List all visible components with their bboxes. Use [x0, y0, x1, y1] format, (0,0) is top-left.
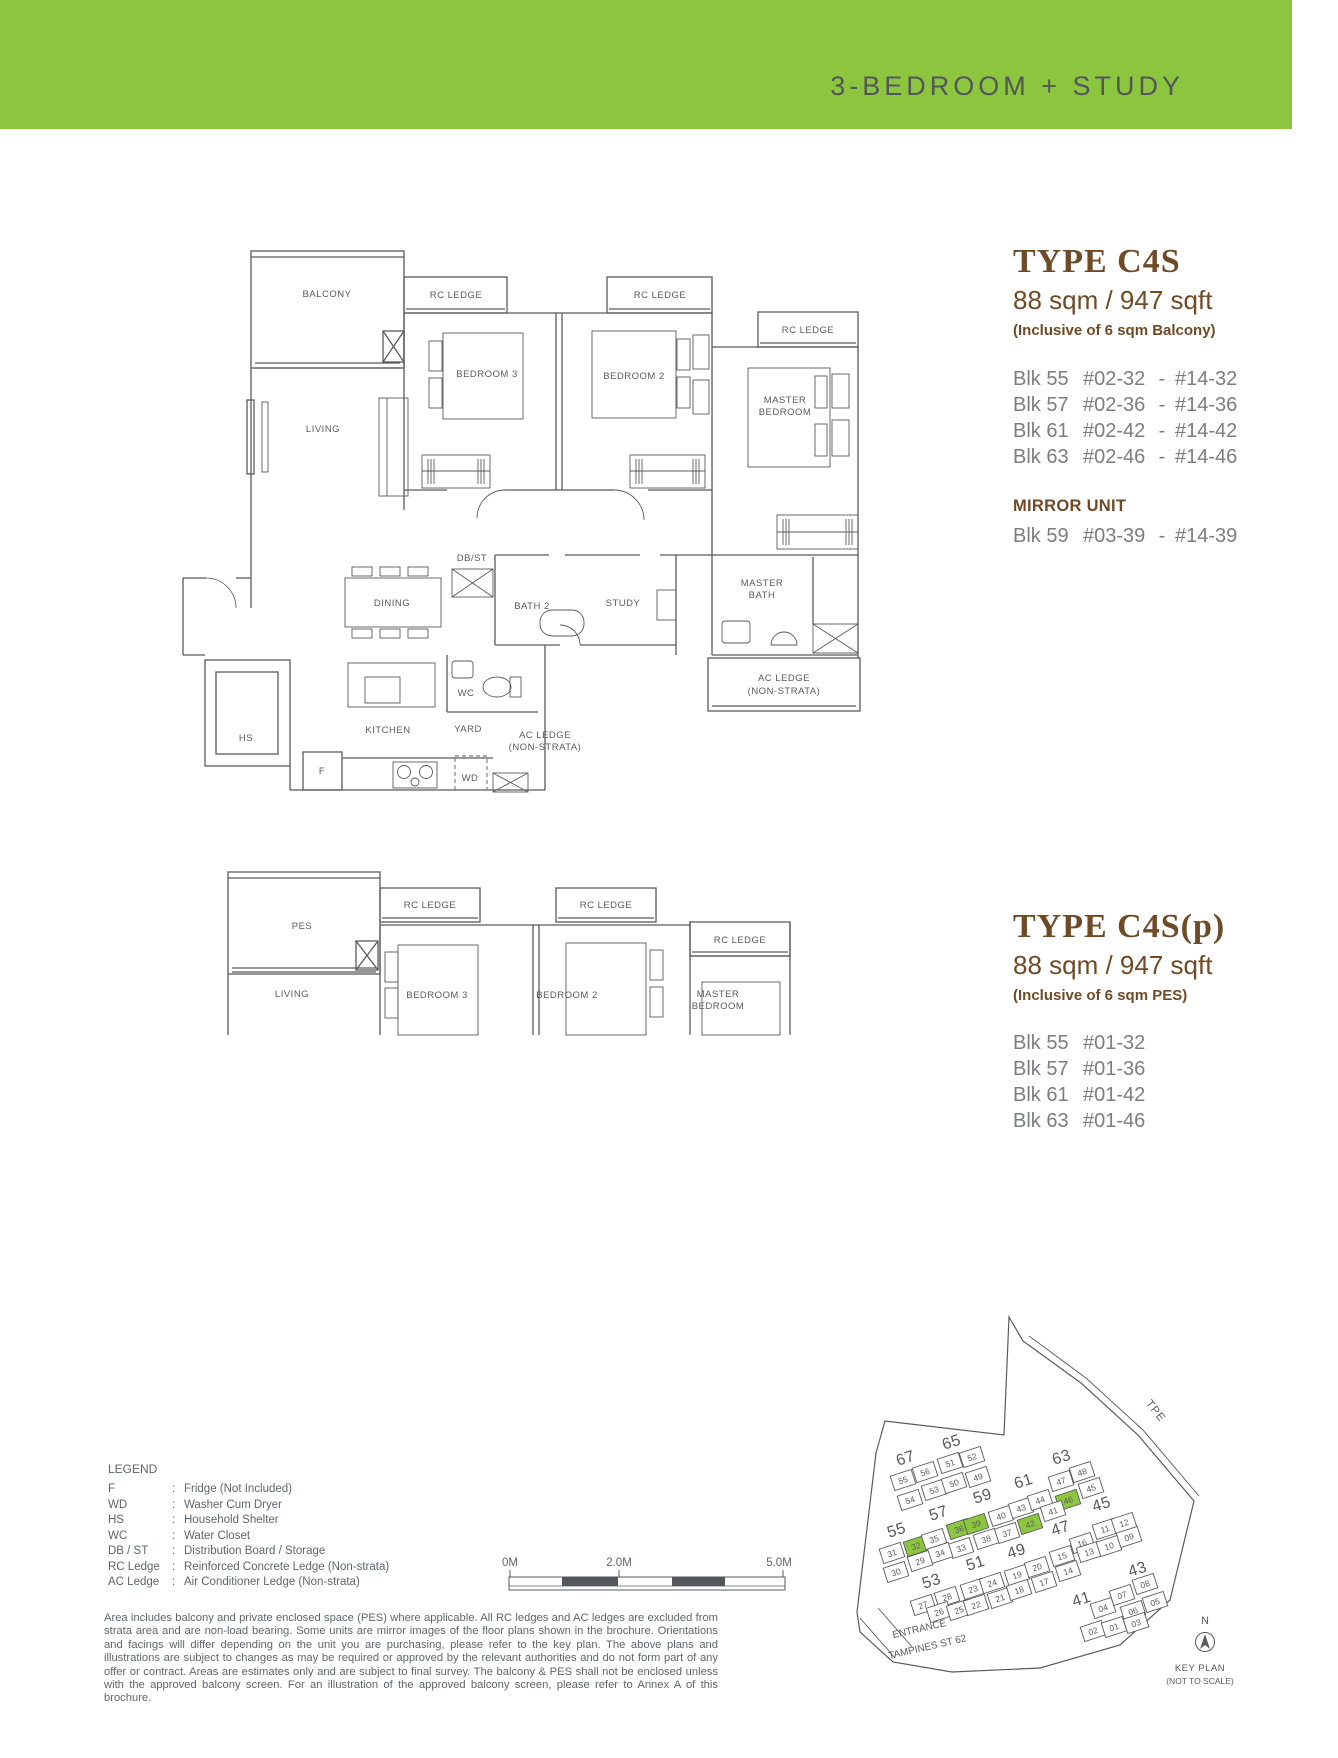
room-label: BEDROOM 3 — [406, 990, 468, 1001]
room-label: PES — [292, 921, 313, 932]
room-label: LIVING — [306, 424, 340, 435]
room-label: RC LEDGE — [404, 900, 457, 911]
legend-desc: Fridge (Not Included) — [184, 1482, 292, 1498]
room-label: RC LEDGE — [782, 325, 835, 336]
room-label: (NON-STRATA) — [509, 742, 582, 753]
key-plan-block-number: 61 — [1012, 1471, 1035, 1493]
unit-row: Blk 57#02-36-#14-36 — [1013, 392, 1237, 418]
scale-label-2m: 2.0M — [606, 1557, 632, 1569]
room-label: YARD — [454, 724, 482, 735]
legend-desc: Distribution Board / Storage — [184, 1544, 325, 1560]
unit-row: Blk 55#02-32-#14-32 — [1013, 366, 1237, 392]
unit-block: Blk 55 — [1013, 366, 1083, 392]
unit-to: #14-39 — [1175, 525, 1237, 547]
legend-item: RC Ledge:Reinforced Concrete Ledge (Non-… — [108, 1560, 389, 1576]
key-plan-caption: KEY PLAN — [1175, 1663, 1225, 1674]
legend-items: F:Fridge (Not Included)WD:Washer Cum Dry… — [108, 1482, 389, 1591]
legend-abbr: RC Ledge — [108, 1560, 172, 1576]
key-plan-unit: 54 — [897, 1489, 923, 1510]
room-label: RC LEDGE — [580, 900, 633, 911]
room-label: BEDROOM — [692, 1001, 745, 1012]
key-plan-block-number: 53 — [920, 1571, 943, 1593]
room-label: RC LEDGE — [714, 935, 767, 946]
legend-item: DB / ST:Distribution Board / Storage — [108, 1544, 389, 1560]
unit-from: #02-36 — [1083, 392, 1149, 418]
legend-item: WD:Washer Cum Dryer — [108, 1498, 389, 1514]
unit-row: Blk 61#02-42-#14-42 — [1013, 418, 1237, 444]
key-plan-block-number: 67 — [894, 1448, 917, 1470]
key-plan-unit: 47 — [1048, 1470, 1074, 1491]
legend-colon: : — [172, 1560, 184, 1576]
legend-abbr: WD — [108, 1498, 172, 1514]
room-label: RC LEDGE — [634, 290, 687, 301]
room-label: MASTER — [741, 578, 784, 589]
key-plan-unit: 31 — [879, 1542, 905, 1563]
unit-row: Blk 61#01-42 — [1013, 1082, 1149, 1108]
type-c4s-title: TYPE C4S — [1013, 243, 1181, 281]
room-label: STUDY — [606, 598, 641, 609]
room-label: BEDROOM 2 — [536, 990, 598, 1001]
floorplan-c4s: BALCONYRC LEDGERC LEDGERC LEDGEBEDROOM 3… — [150, 215, 890, 815]
legend: LEGEND F:Fridge (Not Included)WD:Washer … — [108, 1462, 389, 1591]
legend-abbr: DB / ST — [108, 1544, 172, 1560]
key-plan-block-number: 47 — [1049, 1518, 1072, 1540]
entrance-label: ENTRANCE — [891, 1618, 947, 1641]
legend-abbr: F — [108, 1482, 172, 1498]
unit-block: Blk 63 — [1013, 444, 1083, 470]
header-bar: 3-BEDROOM + STUDY — [0, 0, 1292, 129]
legend-colon: : — [172, 1575, 184, 1591]
scale-label-0m: 0M — [502, 1557, 518, 1569]
room-label: BATH 2 — [514, 601, 550, 612]
legend-desc: Household Shelter — [184, 1513, 279, 1529]
key-plan-unit: 07 — [1109, 1584, 1135, 1605]
room-label: WC — [458, 688, 475, 699]
unit-row: Blk 55#01-32 — [1013, 1030, 1149, 1056]
disclaimer-text: Area includes balcony and private enclos… — [104, 1612, 718, 1706]
key-plan-unit: 51 — [937, 1452, 963, 1473]
scale-bar: 0M 2.0M 5.0M — [490, 1542, 800, 1597]
unit-block: Blk 63 — [1013, 1108, 1083, 1134]
legend-item: AC Ledge:Air Conditioner Ledge (Non-stra… — [108, 1575, 389, 1591]
legend-abbr: AC Ledge — [108, 1575, 172, 1591]
type-c4s-note: (Inclusive of 6 sqm Balcony) — [1013, 322, 1216, 339]
key-plan-unit-highlighted: 42 — [1017, 1513, 1043, 1534]
north-compass-icon: N — [1196, 1615, 1215, 1652]
unit-from: #01-32 — [1083, 1030, 1149, 1056]
unit-from: #02-46 — [1083, 444, 1149, 470]
key-plan-unit: 49 — [965, 1466, 991, 1487]
key-plan-unit: 56 — [912, 1461, 938, 1482]
legend-abbr: HS — [108, 1513, 172, 1529]
room-label: DINING — [374, 598, 410, 609]
north-label: N — [1201, 1615, 1209, 1627]
room-label: BEDROOM — [759, 407, 812, 418]
floorplan-c4sp: PESRC LEDGERC LEDGERC LEDGELIVINGBEDROOM… — [222, 865, 797, 1035]
unit-block: Blk 61 — [1013, 1082, 1083, 1108]
key-plan-block-number: 55 — [885, 1520, 908, 1542]
legend-item: F:Fridge (Not Included) — [108, 1482, 389, 1498]
unit-block: Blk 61 — [1013, 418, 1083, 444]
tpe-road-label: TPE — [1143, 1398, 1167, 1425]
room-label: AC LEDGE — [519, 730, 571, 741]
unit-block: Blk 57 — [1013, 1056, 1083, 1082]
unit-to: #14-32 — [1175, 368, 1237, 390]
type-c4sp-note: (Inclusive of 6 sqm PES) — [1013, 987, 1187, 1004]
unit-range-separator: - — [1149, 444, 1175, 470]
room-label: LIVING — [275, 989, 309, 1000]
type-c4s-area: 88 sqm / 947 sqft — [1013, 285, 1212, 316]
legend-colon: : — [172, 1544, 184, 1560]
unit-from: #01-42 — [1083, 1082, 1149, 1108]
legend-abbr: WC — [108, 1529, 172, 1545]
room-label: BALCONY — [303, 289, 352, 300]
key-plan-unit: 05 — [1142, 1591, 1168, 1612]
room-label: (NON-STRATA) — [748, 686, 821, 697]
unit-range-separator: - — [1149, 523, 1175, 549]
brochure-page: 3-BEDROOM + STUDY — [0, 0, 1338, 1758]
unit-range-separator: - — [1149, 366, 1175, 392]
unit-row: Blk 63#01-46 — [1013, 1108, 1149, 1134]
room-label: BATH — [749, 590, 776, 601]
unit-from: #01-36 — [1083, 1056, 1149, 1082]
floorplan-c4s-walls — [183, 251, 860, 790]
legend-colon: : — [172, 1513, 184, 1529]
room-label: BEDROOM 3 — [456, 369, 518, 380]
key-plan: 5556515254535049313235363940434447484546… — [770, 1300, 1220, 1700]
room-label: F — [319, 766, 325, 777]
key-plan-unit: 30 — [883, 1561, 909, 1582]
scale-bar-graphic: 0M 2.0M 5.0M — [502, 1557, 792, 1590]
key-plan-scale-note: (NOT TO SCALE) — [1166, 1676, 1234, 1686]
room-label: BEDROOM 2 — [603, 371, 665, 382]
type-c4sp-title: TYPE C4S(p) — [1013, 908, 1225, 946]
key-plan-block-number: 57 — [927, 1503, 950, 1525]
room-label: WD — [462, 773, 479, 784]
legend-desc: Washer Cum Dryer — [184, 1498, 282, 1514]
mirror-unit-list: Blk 59#03-39-#14-39 — [1013, 523, 1237, 549]
room-label: AC LEDGE — [758, 673, 810, 684]
unit-row: Blk 57#01-36 — [1013, 1056, 1149, 1082]
type-c4sp-area: 88 sqm / 947 sqft — [1013, 950, 1212, 981]
key-plan-block-number: 51 — [964, 1553, 987, 1575]
unit-from: #03-39 — [1083, 523, 1149, 549]
unit-to: #14-36 — [1175, 394, 1237, 416]
unit-row: Blk 59#03-39-#14-39 — [1013, 523, 1237, 549]
unit-from: #02-32 — [1083, 366, 1149, 392]
key-plan-unit: 50 — [941, 1472, 967, 1493]
type-c4s-unit-list: Blk 55#02-32-#14-32Blk 57#02-36-#14-36Bl… — [1013, 366, 1237, 470]
room-label: MASTER — [697, 989, 740, 1000]
room-label: MASTER — [764, 395, 807, 406]
legend-desc: Air Conditioner Ledge (Non-strata) — [184, 1575, 360, 1591]
legend-colon: : — [172, 1529, 184, 1545]
legend-item: HS:Household Shelter — [108, 1513, 389, 1529]
room-label: HS — [239, 733, 253, 744]
unit-from: #02-42 — [1083, 418, 1149, 444]
legend-colon: : — [172, 1482, 184, 1498]
type-c4sp-unit-list: Blk 55#01-32Blk 57#01-36Blk 61#01-42Blk … — [1013, 1030, 1149, 1134]
key-plan-block-number: 65 — [940, 1432, 963, 1454]
mirror-unit-title: MIRROR UNIT — [1013, 497, 1126, 516]
key-plan-block-number: 45 — [1090, 1494, 1113, 1516]
legend-desc: Reinforced Concrete Ledge (Non-strata) — [184, 1560, 389, 1576]
room-label: KITCHEN — [365, 725, 410, 736]
room-label: RC LEDGE — [430, 290, 483, 301]
legend-item: WC:Water Closet — [108, 1529, 389, 1545]
page-title: 3-BEDROOM + STUDY — [830, 71, 1184, 102]
unit-to: #14-46 — [1175, 446, 1237, 468]
unit-range-separator: - — [1149, 418, 1175, 444]
key-plan-block-number: 63 — [1050, 1447, 1073, 1469]
key-plan-unit: 52 — [959, 1446, 985, 1467]
key-plan-unit: 55 — [890, 1469, 916, 1490]
key-plan-block-number: 41 — [1070, 1589, 1093, 1611]
key-plan-block-number: 59 — [971, 1486, 994, 1508]
legend-desc: Water Closet — [184, 1529, 250, 1545]
unit-from: #01-46 — [1083, 1108, 1149, 1134]
legend-title: LEGEND — [108, 1462, 389, 1476]
key-plan-block-number: 49 — [1005, 1541, 1028, 1563]
unit-row: Blk 63#02-46-#14-46 — [1013, 444, 1237, 470]
unit-block: Blk 57 — [1013, 392, 1083, 418]
legend-colon: : — [172, 1498, 184, 1514]
unit-block: Blk 55 — [1013, 1030, 1083, 1056]
unit-to: #14-42 — [1175, 420, 1237, 442]
unit-block: Blk 59 — [1013, 523, 1083, 549]
unit-range-separator: - — [1149, 392, 1175, 418]
key-plan-unit: 48 — [1069, 1461, 1095, 1482]
room-label: DB/ST — [457, 553, 487, 564]
